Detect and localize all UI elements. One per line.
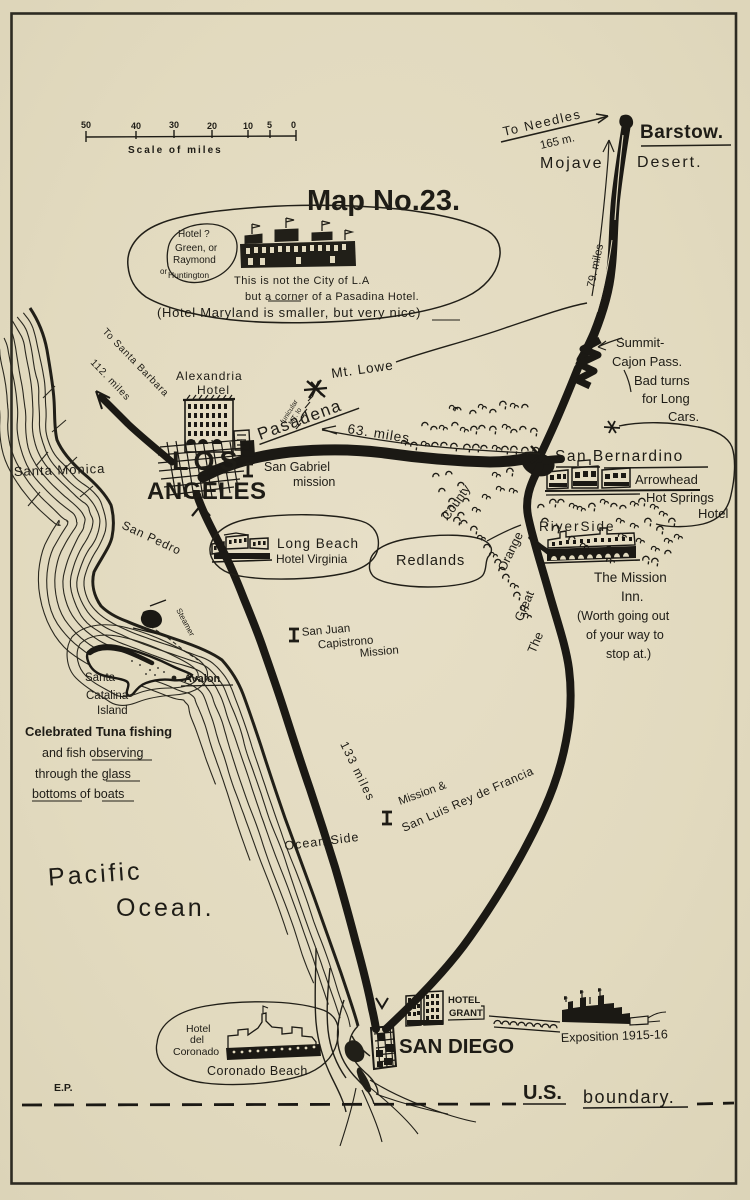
svg-text:or: or — [160, 267, 167, 276]
svg-text:U.S.: U.S. — [523, 1082, 562, 1104]
svg-text:20: 20 — [207, 121, 217, 131]
svg-text:bottoms of boats: bottoms of boats — [32, 787, 124, 801]
svg-text:The Mission: The Mission — [594, 570, 667, 585]
svg-text:boundary.: boundary. — [583, 1087, 675, 1107]
svg-text:HOTEL: HOTEL — [448, 995, 480, 1006]
svg-text:Inn.: Inn. — [621, 589, 644, 604]
svg-text:Raymond: Raymond — [173, 255, 216, 266]
svg-text:Celebrated Tuna fishing: Celebrated Tuna fishing — [25, 724, 172, 739]
svg-text:San Bernardino: San Bernardino — [555, 448, 684, 465]
svg-text:Arrowhead: Arrowhead — [635, 472, 698, 487]
svg-text:del: del — [190, 1034, 204, 1046]
svg-text:(Hotel Maryland is smaller, bu: (Hotel Maryland is smaller, but very nic… — [157, 305, 421, 320]
svg-text:Huntington: Huntington — [168, 270, 209, 280]
svg-text:RiverSide: RiverSide — [539, 519, 616, 534]
svg-text:50: 50 — [81, 120, 91, 130]
svg-text:stop at.): stop at.) — [606, 647, 651, 661]
svg-text:Avalon: Avalon — [184, 673, 221, 685]
svg-text:Cajon Pass.: Cajon Pass. — [612, 354, 682, 369]
svg-text:Scale of miles: Scale of miles — [128, 145, 223, 156]
svg-text:Bad turns: Bad turns — [634, 373, 690, 388]
svg-text:Green, or: Green, or — [175, 243, 218, 254]
svg-text:Barstow.: Barstow. — [640, 122, 724, 143]
svg-text:Long Beach: Long Beach — [277, 536, 359, 551]
svg-text:Coronado: Coronado — [173, 1046, 219, 1058]
svg-text:Ocean.: Ocean. — [116, 894, 215, 922]
svg-text:Alexandria: Alexandria — [176, 369, 243, 383]
svg-text:Redlands: Redlands — [396, 553, 465, 569]
svg-text:Santa Monica: Santa Monica — [14, 461, 106, 479]
svg-text:Map No.23.: Map No.23. — [307, 185, 460, 217]
svg-text:mission: mission — [293, 475, 335, 489]
svg-text:Hotel: Hotel — [698, 506, 728, 521]
svg-text:(Worth going out: (Worth going out — [577, 609, 670, 623]
svg-text:30: 30 — [169, 120, 179, 130]
svg-text:SAN DIEGO: SAN DIEGO — [399, 1035, 514, 1058]
svg-text:Desert.: Desert. — [637, 154, 703, 171]
svg-text:Hotel Virginia: Hotel Virginia — [276, 552, 347, 566]
svg-text:Catalina: Catalina — [86, 690, 129, 702]
svg-text:This is not the City of L.A: This is not the City of L.A — [234, 275, 370, 287]
svg-text:San Gabriel: San Gabriel — [264, 460, 330, 474]
svg-text:0: 0 — [291, 120, 296, 130]
svg-text:5: 5 — [267, 120, 272, 130]
svg-text:Coronado Beach: Coronado Beach — [207, 1064, 308, 1078]
svg-text:through the glass: through the glass — [35, 767, 131, 781]
svg-text:E.P.: E.P. — [54, 1082, 73, 1094]
svg-text:Hotel ?: Hotel ? — [178, 229, 210, 240]
svg-text:10: 10 — [243, 121, 253, 131]
svg-text:ANGELES: ANGELES — [147, 478, 267, 505]
svg-text:Hot Springs: Hot Springs — [646, 490, 714, 505]
svg-text:Mojave: Mojave — [540, 155, 604, 172]
svg-text:40: 40 — [131, 121, 141, 131]
svg-text:and fish observing: and fish observing — [42, 746, 144, 760]
svg-text:LOS: LOS — [172, 446, 243, 476]
svg-text:for Long: for Long — [642, 391, 690, 406]
svg-text:Island: Island — [97, 705, 128, 717]
svg-text:GRANT: GRANT — [449, 1008, 483, 1019]
svg-text:Summit-: Summit- — [616, 335, 664, 350]
svg-text:of your way to: of your way to — [586, 628, 664, 642]
svg-text:Santa: Santa — [85, 672, 116, 684]
svg-text:Cars.: Cars. — [668, 409, 699, 424]
